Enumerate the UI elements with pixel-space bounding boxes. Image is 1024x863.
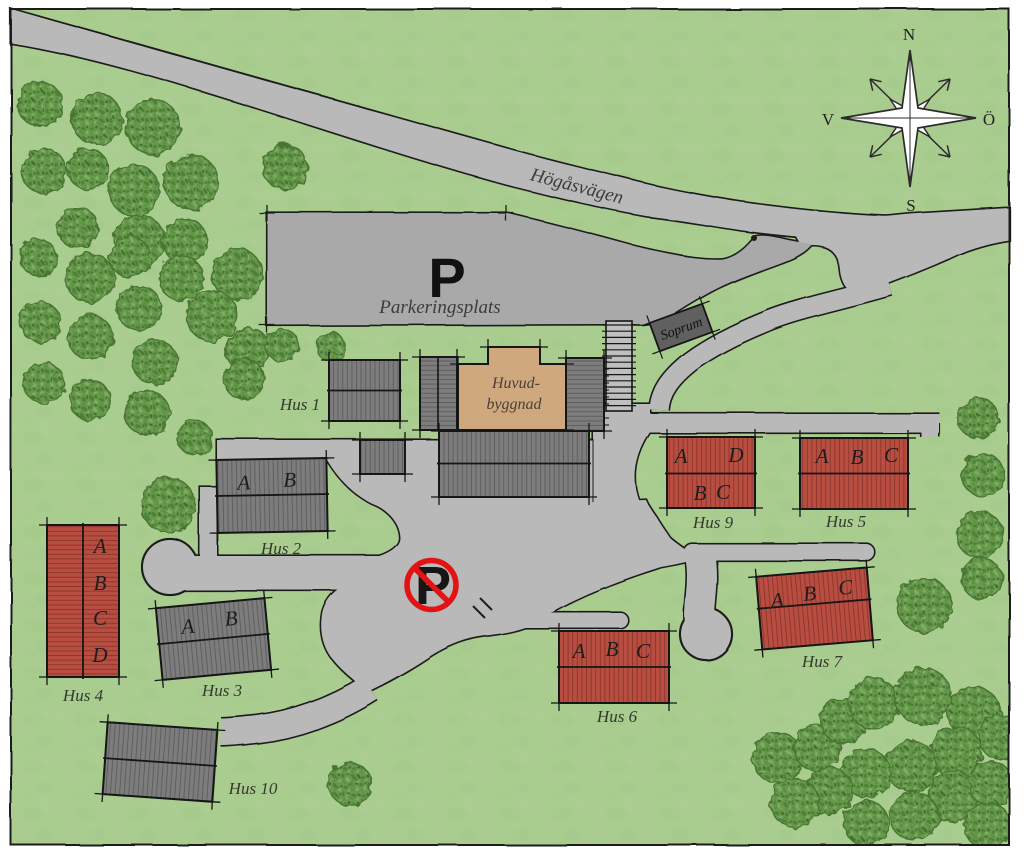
svg-text:Hus 10: Hus 10	[228, 779, 278, 798]
svg-text:A: A	[92, 534, 107, 558]
svg-text:C: C	[884, 443, 899, 467]
svg-text:Hus 5: Hus 5	[825, 512, 866, 531]
svg-text:Hus 7: Hus 7	[801, 652, 844, 671]
svg-text:B: B	[694, 481, 707, 505]
svg-text:B: B	[851, 445, 864, 469]
svg-text:S: S	[906, 196, 915, 215]
svg-text:Hus 4: Hus 4	[62, 686, 104, 705]
svg-text:Hus 3: Hus 3	[201, 681, 242, 700]
svg-text:A: A	[235, 470, 250, 494]
svg-text:Hus 9: Hus 9	[692, 513, 734, 532]
svg-text:Ö: Ö	[983, 110, 995, 129]
svg-text:Hus 2: Hus 2	[260, 539, 302, 558]
svg-text:C: C	[636, 639, 651, 663]
svg-text:A: A	[814, 444, 829, 468]
svg-text:B: B	[283, 468, 296, 492]
svg-text:B: B	[606, 637, 619, 661]
svg-text:Hus 6: Hus 6	[596, 707, 638, 726]
svg-text:Huvud-: Huvud-	[491, 375, 540, 392]
svg-text:A: A	[571, 639, 586, 663]
svg-text:byggnad: byggnad	[486, 396, 542, 413]
svg-text:C: C	[93, 606, 108, 630]
svg-text:N: N	[903, 25, 915, 44]
svg-text:A: A	[673, 444, 688, 468]
svg-text:D: D	[727, 443, 743, 467]
svg-text:B: B	[802, 581, 817, 606]
svg-text:B: B	[224, 606, 239, 631]
svg-text:V: V	[822, 110, 835, 129]
svg-text:D: D	[91, 643, 107, 667]
svg-text:Hus 1: Hus 1	[279, 395, 320, 414]
svg-text:B: B	[94, 571, 107, 595]
svg-text:Parkeringsplats: Parkeringsplats	[378, 297, 500, 318]
svg-text:C: C	[716, 480, 731, 504]
